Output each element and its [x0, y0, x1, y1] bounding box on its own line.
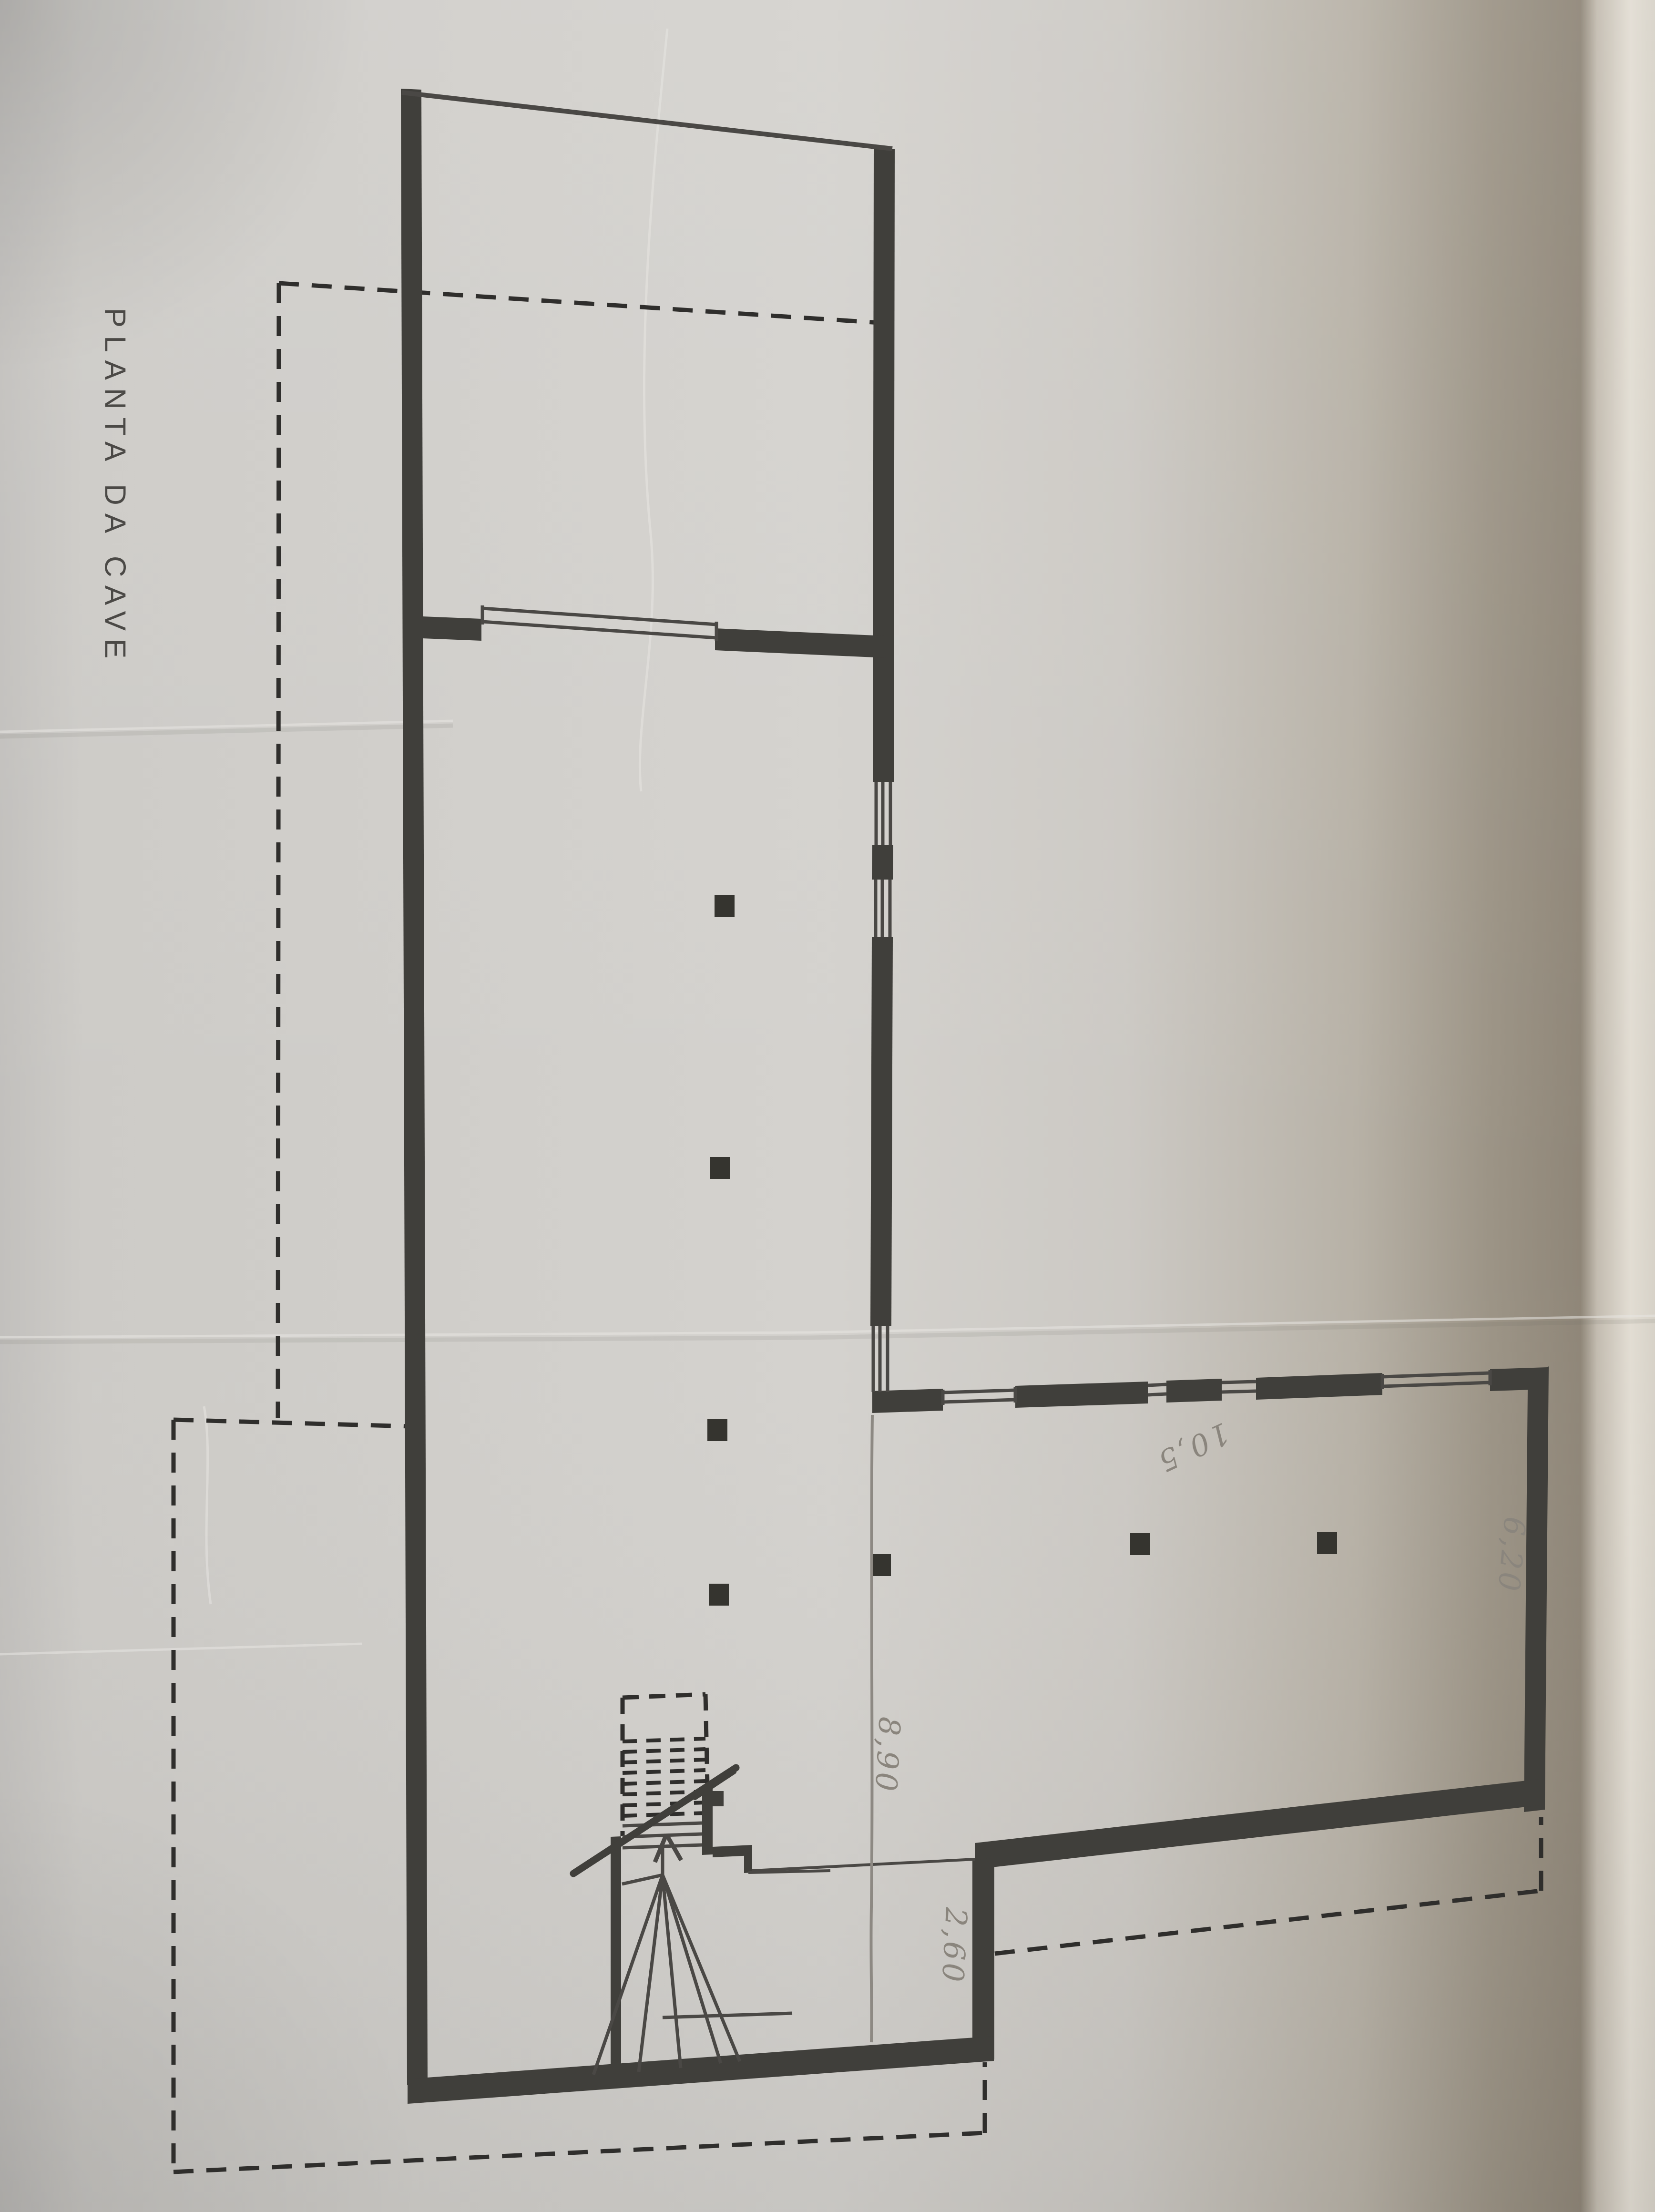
dimension-label-hall-depth: 8,90 — [868, 1716, 907, 1795]
column — [871, 1554, 891, 1576]
page-title: PLANTA DA CAVE — [99, 308, 132, 667]
column — [715, 895, 735, 917]
wing-right-wall-upper — [873, 149, 895, 782]
lower-right-wall — [972, 1858, 994, 2062]
wing-right-wall-lower — [870, 937, 893, 1326]
dimension-label-passage: 2,60 — [935, 1906, 974, 1986]
window-line — [943, 1390, 1015, 1393]
window-line — [1222, 1382, 1256, 1382]
corner-shadow-bottomleft — [0, 1716, 477, 2212]
corner-shadow-topleft — [0, 0, 429, 477]
corridor-wall-return — [744, 1853, 752, 1873]
window-line — [1148, 1394, 1166, 1395]
bigroom-top-wall-pier — [1166, 1379, 1222, 1403]
column — [709, 1584, 729, 1606]
bigroom-top-wall-pier — [1015, 1382, 1148, 1408]
scanned-basement-floorplan: PLANTA DA CAVE 8,90 2,60 10,5 6,20 — [0, 0, 1655, 2212]
window-line — [1222, 1391, 1256, 1392]
divider-wall-left-stub — [411, 616, 481, 641]
wing-right-wall-pier — [872, 845, 893, 880]
paper-background — [0, 0, 1655, 2212]
column — [707, 1419, 727, 1441]
column — [1317, 1532, 1337, 1554]
stair-left-wall-stub — [611, 1836, 621, 2066]
floorplan-drawing: PLANTA DA CAVE 8,90 2,60 10,5 6,20 — [0, 0, 1655, 2212]
dashed-boundary-line-left-vertical — [278, 283, 279, 1418]
stair-right-wall — [702, 1786, 713, 1855]
stair-wall-nib — [713, 1791, 724, 1806]
threshold-line — [748, 1871, 830, 1873]
bigroom-right-wall — [1524, 1366, 1549, 1812]
window-line — [1148, 1384, 1166, 1385]
column — [1130, 1533, 1150, 1555]
column — [710, 1157, 730, 1179]
dimension-label-right-side: 6,20 — [1491, 1516, 1532, 1596]
window-line — [943, 1400, 1015, 1402]
bigroom-top-wall-pier — [872, 1389, 943, 1413]
